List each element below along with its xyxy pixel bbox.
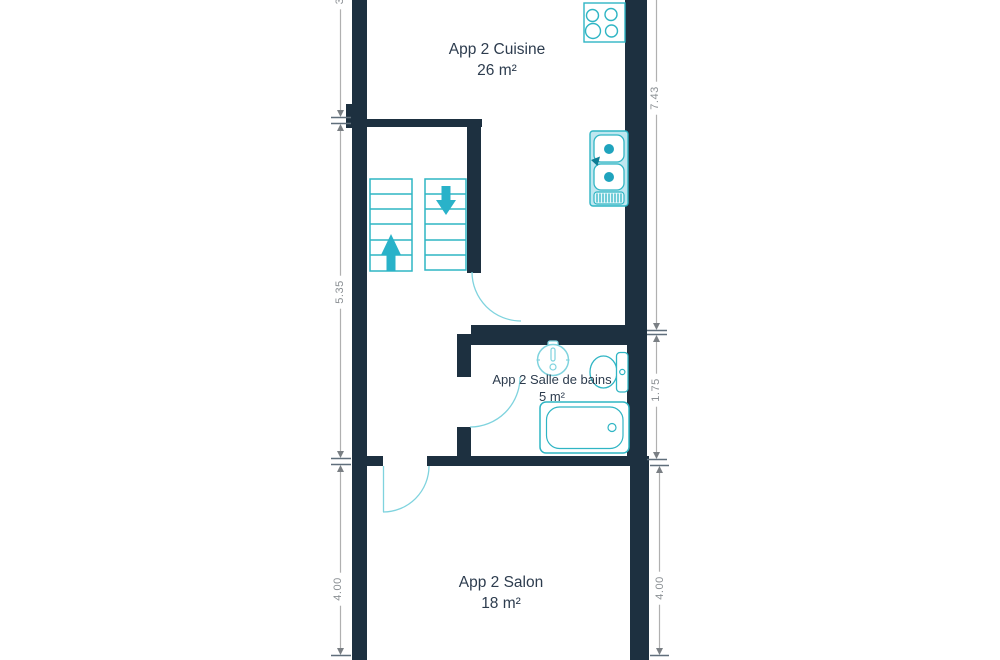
door-arc-hall — [472, 272, 521, 321]
wall-bath-right — [627, 345, 647, 456]
room-name: App 2 Salle de bains — [492, 371, 611, 388]
room-name: App 2 Salon — [459, 572, 543, 593]
dimension-label-left-bottom: 4.00 — [331, 572, 345, 605]
wall-bath-left-upper — [457, 345, 471, 377]
dimension-label-left-top: 3 — [333, 0, 347, 9]
wall-salon-right — [630, 466, 649, 660]
staircase — [370, 179, 466, 271]
drainboard-stripes — [597, 194, 621, 203]
stairs-down-arrow-icon — [436, 186, 456, 215]
floor-plan-drawing — [0, 0, 1000, 660]
wall-salon-top-left — [352, 456, 383, 466]
room-label-salle-de-bains: App 2 Salle de bains 5 m² — [492, 371, 611, 405]
walls — [346, 0, 649, 660]
wall-hall-upper — [471, 325, 647, 334]
floor-plan: App 2 Cuisine 26 m² App 2 Salle de bains… — [0, 0, 1000, 660]
wall-bath-left-lower — [457, 427, 471, 456]
dimension-label-left-middle: 5.35 — [333, 275, 347, 308]
kitchen-sink-icon — [590, 131, 628, 206]
wall-salon-top-right — [427, 456, 649, 466]
wall-left — [352, 0, 367, 660]
room-label-cuisine: App 2 Cuisine 26 m² — [449, 39, 546, 81]
door-arc-salon — [383, 466, 429, 512]
room-area: 26 m² — [449, 60, 546, 81]
room-label-salon: App 2 Salon 18 m² — [459, 572, 543, 614]
dimension-label-right-bottom: 4.00 — [653, 571, 667, 604]
room-name: App 2 Cuisine — [449, 39, 546, 60]
dimension-label-right-middle: 1.75 — [649, 373, 663, 406]
wall-stairwell-top — [352, 119, 482, 127]
room-area: 18 m² — [459, 593, 543, 614]
wall-left-notch — [346, 104, 353, 128]
bathtub-icon — [540, 402, 629, 453]
dimension-label-right-top: 7.43 — [648, 81, 662, 114]
room-area: 5 m² — [492, 388, 611, 405]
stove-burners-icon — [584, 3, 625, 42]
wall-stairwell-right — [467, 127, 481, 273]
